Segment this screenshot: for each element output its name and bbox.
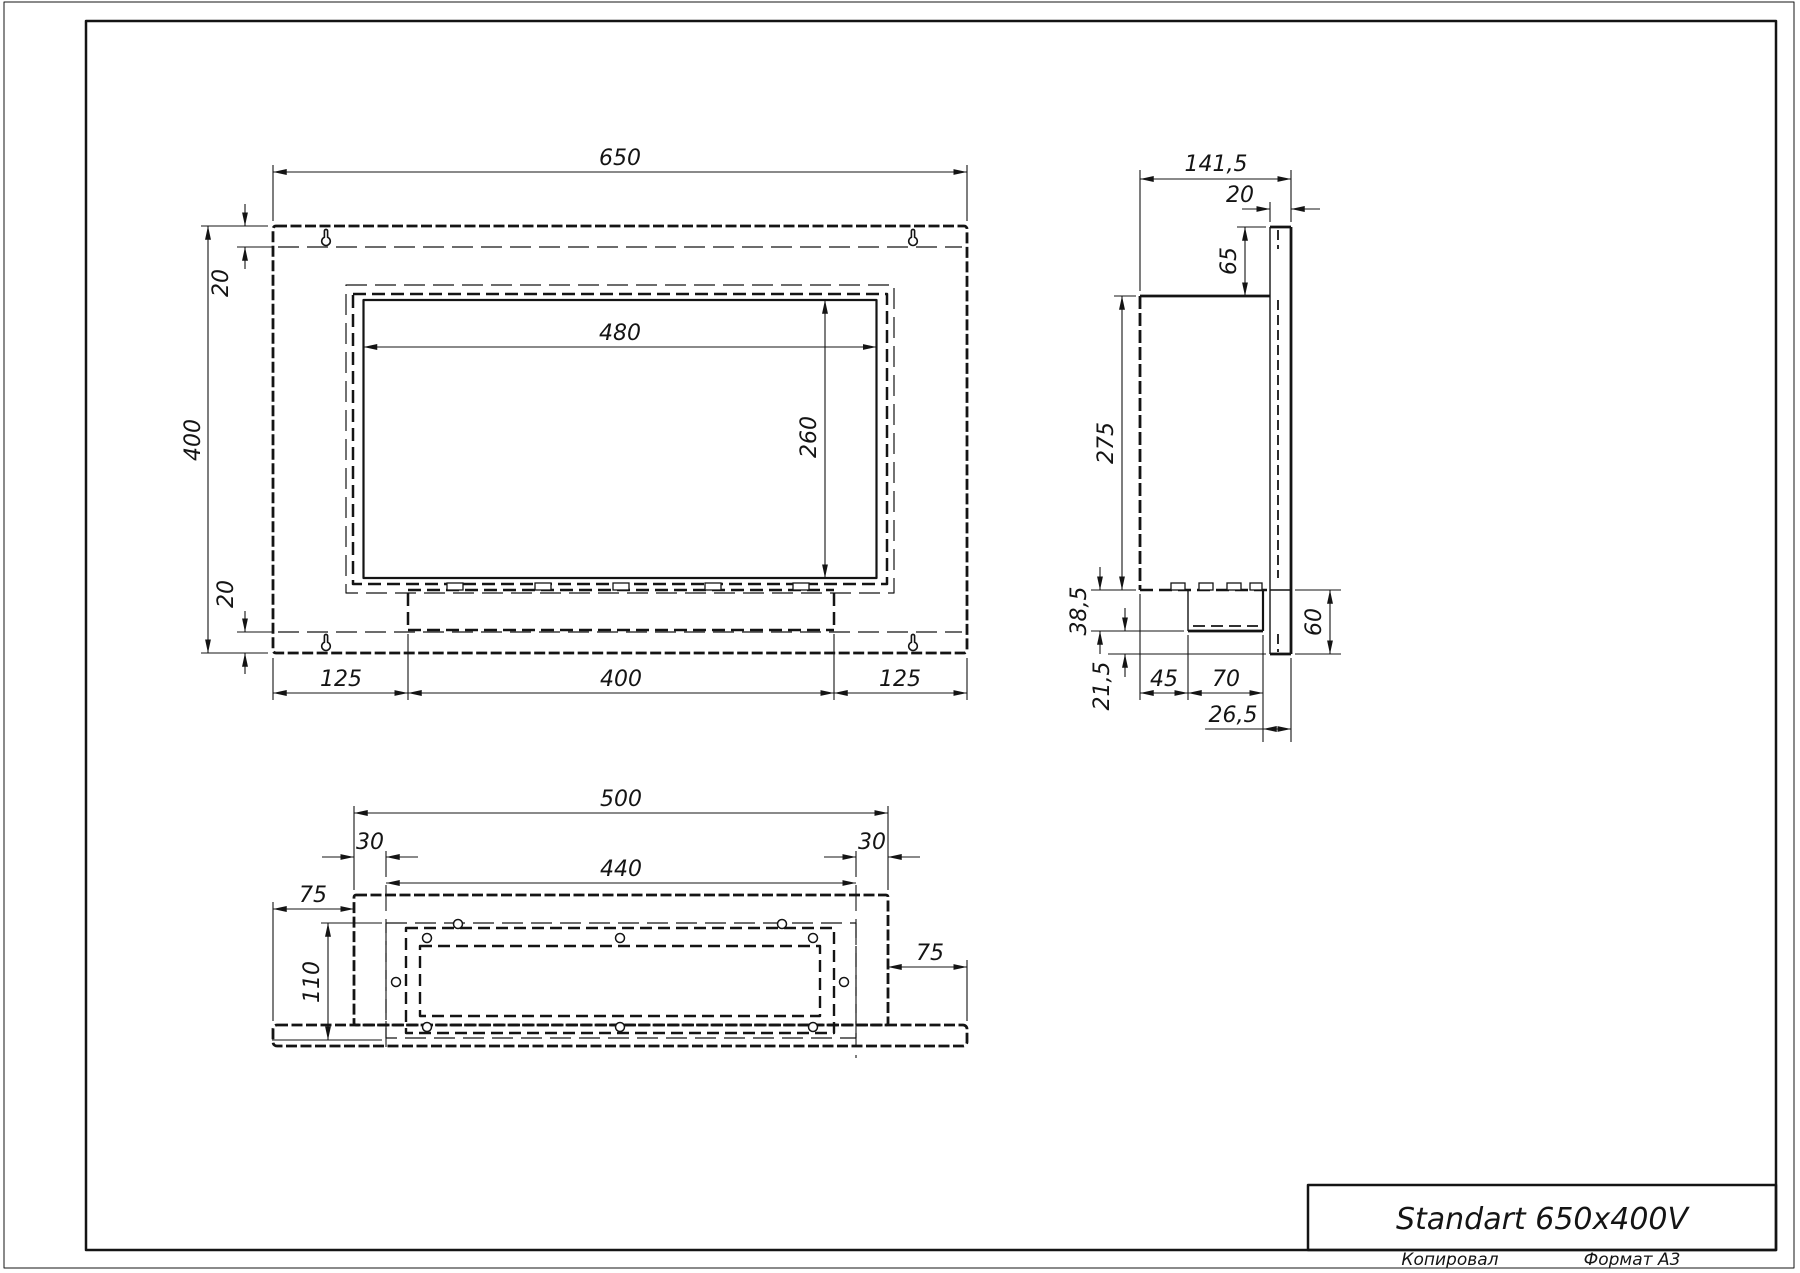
title-block: Standart 650x400V bbox=[1308, 1185, 1776, 1250]
side-tray-offset-label: 45 bbox=[1150, 667, 1178, 692]
side-tray-drop-label: 38,5 bbox=[1067, 587, 1092, 636]
front-view: 650 400 20 20 480 260 bbox=[181, 146, 967, 700]
side-depth-label: 141,5 bbox=[1185, 152, 1248, 177]
side-body-height-label: 275 bbox=[1094, 422, 1119, 464]
title-block-title: Standart 650x400V bbox=[1396, 1202, 1691, 1237]
drawing-sheet: 650 400 20 20 480 260 bbox=[0, 0, 1800, 1273]
side-lower-height-label: 60 bbox=[1302, 608, 1327, 636]
bottom-overhang-left-label: 75 bbox=[299, 883, 327, 908]
bottom-overhang-right-label: 75 bbox=[916, 941, 944, 966]
side-tray-to-front-label: 26,5 bbox=[1209, 703, 1258, 728]
footer-copied-label: Копировал bbox=[1401, 1250, 1498, 1270]
bottom-inset-left-label: 30 bbox=[356, 830, 384, 855]
front-bottom-center-label: 400 bbox=[600, 667, 642, 692]
side-dimensions: 141,5 20 65 275 38,5 21,5 bbox=[1067, 152, 1341, 742]
front-offset-top-label: 20 bbox=[209, 269, 234, 297]
front-bottom-left-label: 125 bbox=[320, 667, 362, 692]
front-opening-height-label: 260 bbox=[797, 416, 822, 458]
bottom-inner-depth-label: 110 bbox=[300, 961, 325, 1003]
bottom-view: 500 30 30 440 75 110 75 bbox=[272, 787, 967, 1058]
side-tray-width-label: 70 bbox=[1212, 667, 1240, 692]
front-bottom-right-label: 125 bbox=[879, 667, 921, 692]
side-top-inset-label: 65 bbox=[1217, 247, 1242, 275]
front-offset-bottom-label: 20 bbox=[214, 580, 239, 608]
side-bottom-lip-label: 21,5 bbox=[1090, 662, 1115, 711]
bottom-body-outline bbox=[354, 895, 888, 1025]
bottom-body-width-label: 500 bbox=[600, 787, 642, 812]
front-opening-width-label: 480 bbox=[599, 321, 641, 346]
bottom-holes bbox=[392, 920, 849, 1032]
front-dimensions: 650 400 20 20 480 260 bbox=[181, 146, 967, 700]
front-height-label: 400 bbox=[181, 419, 206, 461]
side-view: 141,5 20 65 275 38,5 21,5 bbox=[1067, 152, 1341, 742]
drawing-canvas: 650 400 20 20 480 260 bbox=[0, 0, 1800, 1273]
sheet-footer: Копировал Формат А3 bbox=[1401, 1250, 1680, 1270]
bottom-inner-width-label: 440 bbox=[600, 857, 642, 882]
front-width-label: 650 bbox=[599, 146, 641, 171]
bottom-inset-right-label: 30 bbox=[858, 830, 886, 855]
side-flange-thickness-label: 20 bbox=[1226, 183, 1254, 208]
bottom-dimensions: 500 30 30 440 75 110 75 bbox=[272, 787, 967, 1040]
footer-format-label: Формат А3 bbox=[1584, 1250, 1681, 1270]
